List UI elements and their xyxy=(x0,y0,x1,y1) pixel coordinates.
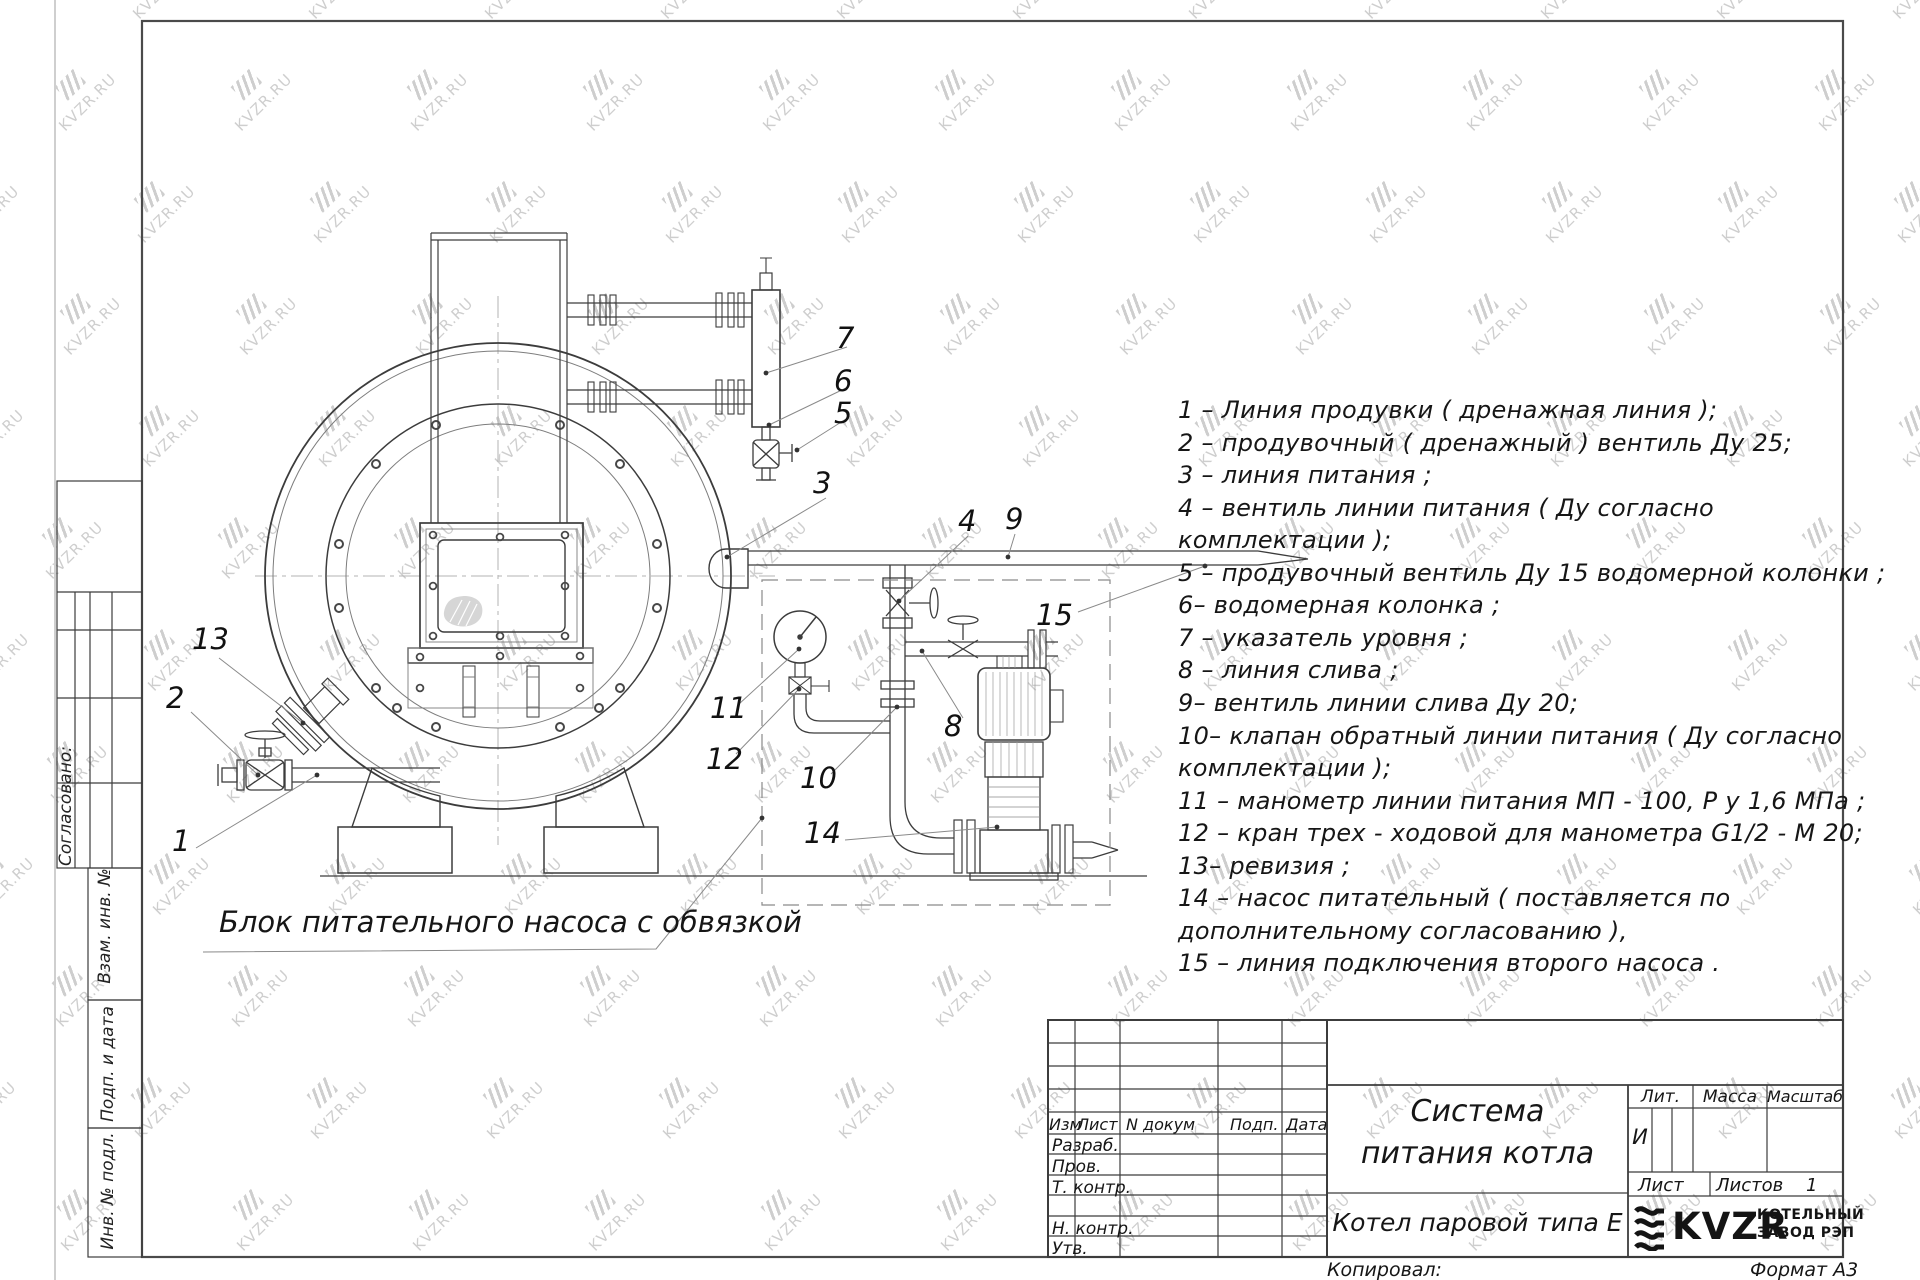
mass-label: Масса xyxy=(1693,1087,1767,1107)
stack xyxy=(431,233,567,523)
callout-15: 15 xyxy=(1036,598,1073,632)
callout-4: 4 xyxy=(958,504,976,538)
company-line2: ЗАВОД РЭП xyxy=(1757,1225,1854,1241)
lit-value: И xyxy=(1628,1125,1652,1149)
callout-14: 14 xyxy=(804,816,841,850)
col-doc: N докум xyxy=(1126,1115,1195,1134)
callout-11: 11 xyxy=(710,691,747,725)
callout-12: 12 xyxy=(706,742,743,776)
callout-5: 5 xyxy=(834,396,852,430)
legend-line: 2 – продувочный ( дренажный ) вентиль Ду… xyxy=(1178,429,1792,457)
column-blowdown-valve xyxy=(753,427,792,480)
leader-lines xyxy=(191,347,1207,952)
legend-line: 11 – манометр линии питания МП - 100, Р … xyxy=(1178,787,1865,815)
lower-plate xyxy=(408,648,593,717)
col-podp: Подп. xyxy=(1230,1115,1278,1134)
callout-8: 8 xyxy=(944,709,962,743)
row-razrab: Разраб. xyxy=(1052,1136,1119,1156)
legend-line: дополнительному согласованию ), xyxy=(1178,917,1628,945)
col-data: Дата xyxy=(1286,1115,1327,1134)
legend-line: 13– ревизия ; xyxy=(1178,852,1350,880)
legend-line: 3 – линия питания ; xyxy=(1178,461,1432,489)
legend-line: 10– клапан обратный линии питания ( Ду с… xyxy=(1178,722,1842,750)
callout-3: 3 xyxy=(813,466,831,500)
level-column xyxy=(567,258,792,480)
legend-line: 8 – линия слива ; xyxy=(1178,656,1399,684)
approved-label: Согласовано: xyxy=(56,706,76,906)
legend-line: 4 – вентиль линии питания ( Ду согласно xyxy=(1178,494,1714,522)
check-valve xyxy=(881,681,914,707)
drawing-sheet: KVZR.RUKVZR.RUKVZR.RUKVZR.RUKVZR.RUKVZR.… xyxy=(0,0,1920,1280)
feed-valve xyxy=(883,578,938,628)
row-utv: Утв. xyxy=(1052,1239,1088,1259)
furnace-door xyxy=(420,523,583,648)
feed-nozzle xyxy=(709,549,748,588)
lit-label: Лит. xyxy=(1628,1087,1693,1107)
scale-label: Масштаб xyxy=(1767,1087,1843,1106)
company-line1: КОТЕЛЬНЫЙ xyxy=(1757,1207,1864,1223)
centerlines xyxy=(255,296,775,845)
callout-1: 1 xyxy=(172,824,190,858)
legend-line: 7 – указатель уровня ; xyxy=(1178,624,1468,652)
kvzr-coil-icon xyxy=(1633,1203,1667,1251)
legend-line: 14 – насос питательный ( поставляется по xyxy=(1178,884,1731,912)
sight-blob xyxy=(444,596,483,626)
gauge-siphon xyxy=(794,694,890,733)
sheet-label: Лист xyxy=(1638,1175,1684,1196)
product-name: Котел паровой типа Е xyxy=(1327,1208,1628,1237)
feed-pump xyxy=(954,656,1118,880)
legend-line: комплектации ); xyxy=(1178,526,1391,554)
doc-title-line1: Система xyxy=(1327,1094,1628,1129)
callout-13: 13 xyxy=(192,622,229,656)
copied-label: Копировал: xyxy=(1327,1259,1442,1280)
col-list: Лист xyxy=(1077,1115,1118,1134)
legend-line: 5 – продувочный вентиль Ду 15 водомерной… xyxy=(1178,559,1885,587)
drain-pipe xyxy=(292,768,440,782)
legend-line: 1 – Линия продувки ( дренажная линия ); xyxy=(1178,396,1717,424)
legend-line: 12 – кран трех - ходовой для манометра G… xyxy=(1178,819,1863,847)
legend-line: комплектации ); xyxy=(1178,754,1391,782)
callout-6: 6 xyxy=(834,364,852,398)
inv-podl-label: Инв. № подл. xyxy=(98,1091,118,1280)
row-tkontr: Т. контр. xyxy=(1052,1178,1131,1198)
callout-7: 7 xyxy=(836,321,854,355)
blowdown-valve xyxy=(218,731,292,790)
sheets-label: Листов xyxy=(1716,1175,1783,1196)
sheet-frame xyxy=(142,21,1843,1257)
legend-line: 9– вентиль линии слива Ду 20; xyxy=(1178,689,1578,717)
drawing-caption: Блок питательного насоса с обвязкой xyxy=(219,905,802,939)
legend-line: 15 – линия подключения второго насоса . xyxy=(1178,949,1720,977)
callout-9: 9 xyxy=(1005,502,1023,536)
row-nkontr: Н. контр. xyxy=(1052,1219,1133,1239)
format-label: Формат А3 xyxy=(1750,1259,1858,1280)
sheets-value: 1 xyxy=(1806,1175,1817,1196)
revision-fitting xyxy=(268,669,358,759)
legend-line: 6– водомерная колонка ; xyxy=(1178,591,1500,619)
callout-2: 2 xyxy=(166,681,184,715)
boiler-front-view xyxy=(265,233,1147,876)
doc-title-line2: питания котла xyxy=(1327,1136,1628,1171)
row-prov: Пров. xyxy=(1052,1157,1101,1177)
pressure-gauge xyxy=(774,611,829,694)
callout-10: 10 xyxy=(800,761,837,795)
